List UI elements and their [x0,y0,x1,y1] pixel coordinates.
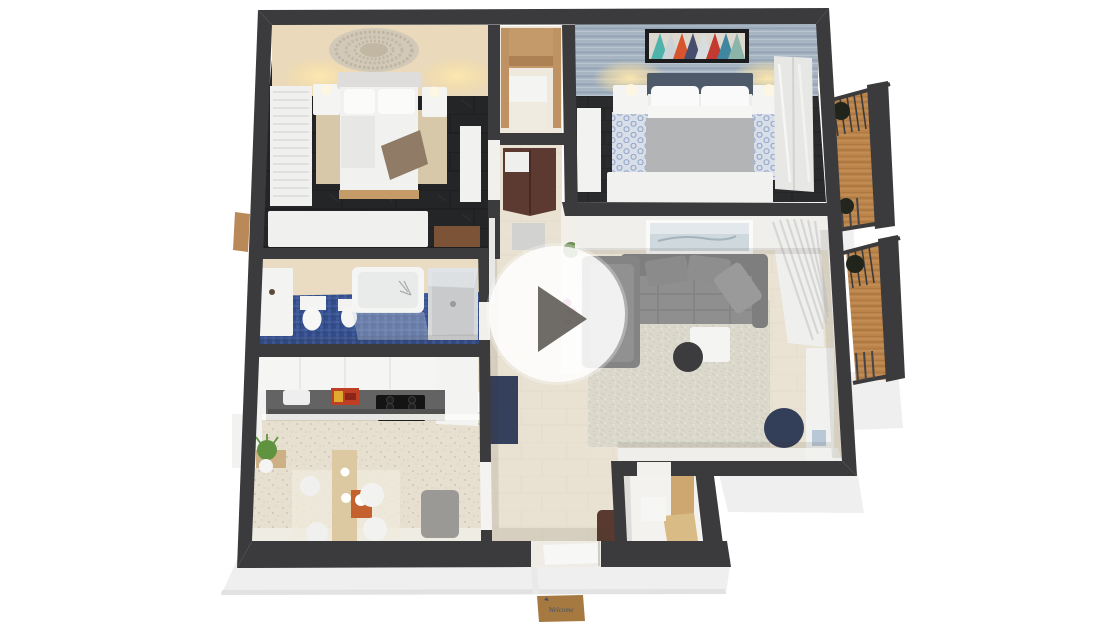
svg-text:Welcome: Welcome [548,606,573,614]
